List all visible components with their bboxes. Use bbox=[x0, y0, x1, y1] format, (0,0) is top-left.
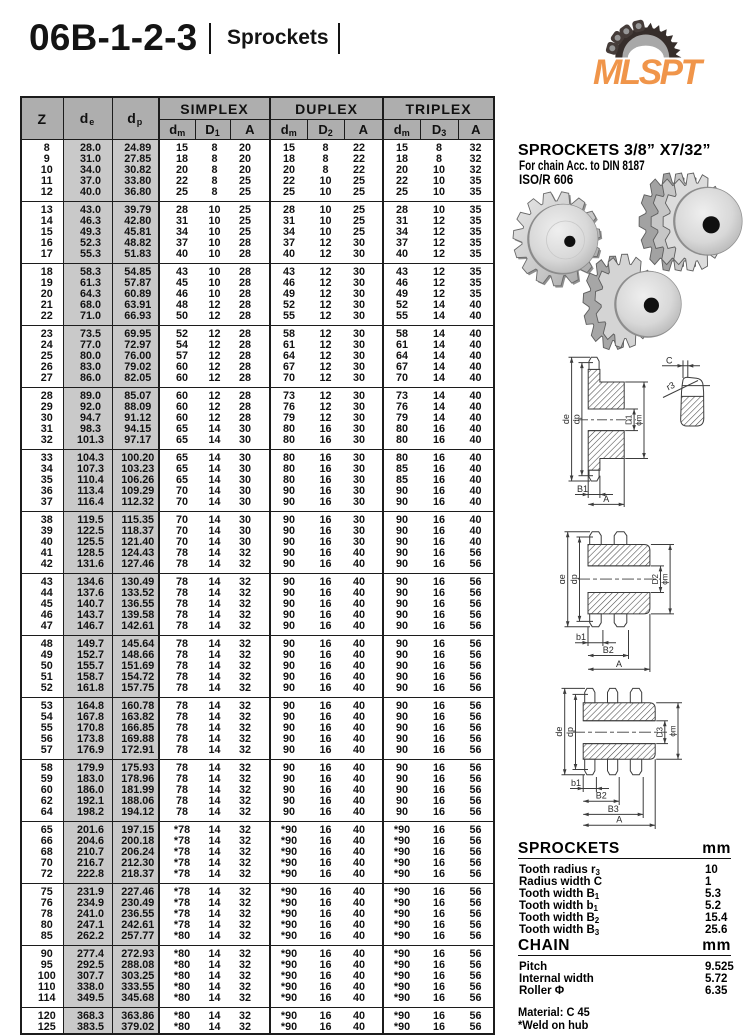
svg-text:de: de bbox=[560, 574, 567, 584]
svg-text:ϕm: ϕm bbox=[669, 725, 678, 736]
svg-text:b1: b1 bbox=[576, 632, 586, 642]
svg-text:b1: b1 bbox=[571, 778, 581, 788]
svg-text:C: C bbox=[666, 356, 673, 366]
svg-text:ϕm: ϕm bbox=[661, 573, 670, 584]
svg-text:ϕm: ϕm bbox=[635, 414, 644, 425]
svg-text:B2: B2 bbox=[603, 645, 614, 655]
svg-text:dp: dp bbox=[569, 574, 579, 584]
svg-text:de: de bbox=[561, 414, 571, 424]
svg-text:dp: dp bbox=[571, 414, 581, 424]
svg-text:A: A bbox=[616, 659, 622, 669]
svg-text:de: de bbox=[555, 727, 564, 737]
svg-text:B3: B3 bbox=[608, 804, 619, 814]
svg-text:D1: D1 bbox=[625, 414, 634, 425]
svg-text:A: A bbox=[603, 494, 609, 504]
svg-text:MLSPT: MLSPT bbox=[593, 53, 705, 92]
svg-text:B1: B1 bbox=[577, 484, 588, 494]
svg-text:D2: D2 bbox=[651, 574, 660, 585]
svg-text:D3: D3 bbox=[655, 727, 664, 738]
svg-text:A: A bbox=[616, 815, 622, 825]
svg-text:B2: B2 bbox=[596, 791, 607, 801]
svg-text:r3: r3 bbox=[665, 380, 677, 393]
svg-text:dp: dp bbox=[565, 727, 575, 737]
